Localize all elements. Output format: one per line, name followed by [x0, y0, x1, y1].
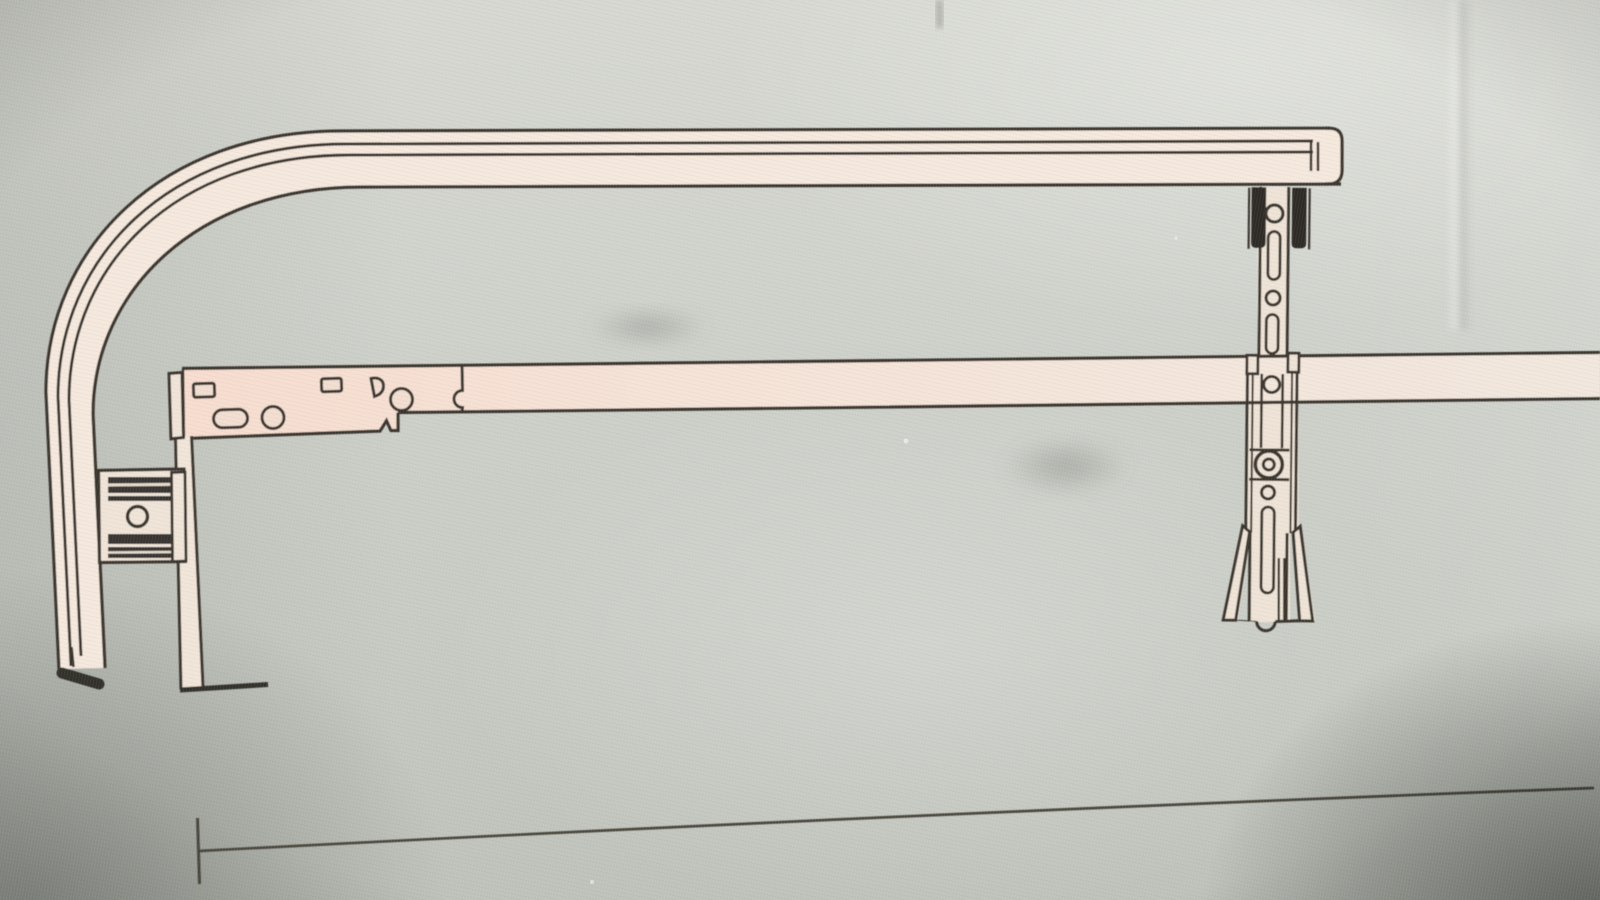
lighting-overlays [0, 0, 1600, 900]
photographed-diagram [0, 0, 1600, 900]
diagram-canvas [0, 0, 1600, 900]
vignette [0, 0, 1600, 900]
